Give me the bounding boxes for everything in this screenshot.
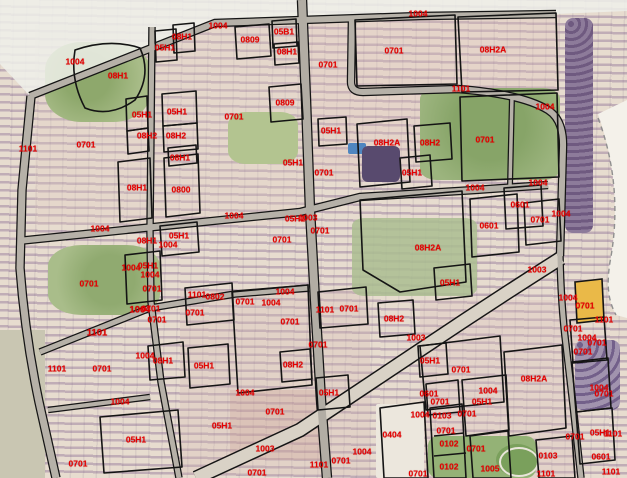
parcel-label[interactable]: 0701 xyxy=(186,309,205,318)
parcel-label[interactable]: 0809 xyxy=(276,99,295,108)
parcel-label[interactable]: 0701 xyxy=(80,280,99,289)
parcel-label[interactable]: 1004 xyxy=(411,411,430,420)
parcel-label[interactable]: 1003 xyxy=(528,266,547,275)
parcel-label[interactable]: 0701 xyxy=(452,366,471,375)
parcel-label[interactable]: 05H1 xyxy=(420,357,440,366)
parcel-label[interactable]: 1101 xyxy=(537,470,555,478)
parcel-label[interactable]: 0701 xyxy=(225,113,244,122)
parcel-label[interactable]: 0701 xyxy=(409,470,428,478)
parcel-label[interactable]: 1004 xyxy=(353,448,372,457)
parcel-label[interactable]: 0701 xyxy=(315,169,334,178)
parcel-label[interactable]: 05H1 xyxy=(440,279,460,288)
parcel-label[interactable]: 05H1 xyxy=(167,108,187,117)
parcel-label[interactable]: 0701 xyxy=(148,316,167,325)
parcel-label[interactable]: 1004 xyxy=(136,352,155,361)
parcel-label[interactable]: 05H1 xyxy=(155,44,175,53)
parcel-label[interactable]: 0701 xyxy=(476,136,495,145)
parcel-label[interactable]: 08H2A xyxy=(415,244,441,253)
parcel-label[interactable]: 05H1 xyxy=(319,389,339,398)
parcel-label[interactable]: 0701 xyxy=(266,408,285,417)
parcel-label[interactable]: 1101 xyxy=(316,306,334,315)
parcel-label[interactable]: 08H1 xyxy=(153,357,173,366)
parcel-label[interactable]: 0103 xyxy=(433,412,452,421)
parcel-label[interactable]: 0701 xyxy=(458,410,477,419)
parcel-label[interactable]: 05H1 xyxy=(472,398,492,407)
parcel-label[interactable]: 0701 xyxy=(385,47,404,56)
parcel-label[interactable]: 0701 xyxy=(437,427,456,436)
parcel-label[interactable]: 0701 xyxy=(311,227,330,236)
parcel-label[interactable]: 0701 xyxy=(431,398,450,407)
parcel-label[interactable]: 0701 xyxy=(142,305,161,314)
parcel-label[interactable]: 0404 xyxy=(383,431,402,440)
parcel-label[interactable]: 1101 xyxy=(595,316,613,325)
parcel-label[interactable]: 1101 xyxy=(48,365,66,374)
parcel-label[interactable]: 0701 xyxy=(281,318,300,327)
parcel-label[interactable]: 08H1 xyxy=(127,184,147,193)
parcel-label[interactable]: 0701 xyxy=(531,216,550,225)
parcel-label[interactable]: 0103 xyxy=(539,452,558,461)
parcel-label[interactable]: 0802 xyxy=(206,293,225,302)
parcel-label[interactable]: 05H1 xyxy=(194,362,214,371)
parcel-label[interactable]: 1004 xyxy=(479,387,498,396)
parcel-label[interactable]: 1101 xyxy=(604,430,622,439)
parcel-label[interactable]: 05H1 xyxy=(126,436,146,445)
parcel-label[interactable]: 0701 xyxy=(576,302,595,311)
parcel-label[interactable]: 1004 xyxy=(276,288,295,297)
parcel-label[interactable]: 08H1 xyxy=(172,33,192,42)
parcel-label[interactable]: 0701 xyxy=(69,460,88,469)
parcel-label[interactable]: 1004 xyxy=(225,212,244,221)
parcel-label[interactable]: 0800 xyxy=(172,186,191,195)
parcel-label[interactable]: 08H2 xyxy=(384,315,404,324)
parcel-label[interactable]: 0102 xyxy=(440,440,459,449)
parcel-label[interactable]: 0601 xyxy=(511,201,530,210)
parcel-label[interactable]: 08H2 xyxy=(420,139,440,148)
parcel-label[interactable]: 1004 xyxy=(262,299,281,308)
parcel-label[interactable]: 1005 xyxy=(481,465,500,474)
parcel-label[interactable]: 05H1 xyxy=(321,127,341,136)
parcel-label[interactable]: 08H1 xyxy=(277,48,297,57)
parcel-label[interactable]: 1004 xyxy=(409,10,428,19)
parcel-label[interactable]: 08H2 xyxy=(137,132,157,141)
parcel-label[interactable]: 0701 xyxy=(273,236,292,245)
parcel-label[interactable]: 08H2 xyxy=(283,361,303,370)
parcel-label[interactable]: 0701 xyxy=(309,341,328,350)
parcel-label[interactable]: 08H1 xyxy=(108,72,128,81)
parcel-label[interactable]: 1004 xyxy=(529,179,548,188)
parcel-label[interactable]: 1004 xyxy=(91,225,110,234)
parcel-label[interactable]: 0701 xyxy=(332,457,351,466)
parcel-label[interactable]: 1003 xyxy=(256,445,275,454)
parcel-label[interactable]: 1004 xyxy=(66,58,85,67)
parcel-label[interactable]: 0701 xyxy=(248,469,267,478)
parcel-label[interactable]: 0601 xyxy=(480,222,499,231)
parcel-label[interactable]: 0701 xyxy=(467,445,486,454)
parcel-label[interactable]: 0701 xyxy=(77,141,96,150)
parcel-label[interactable]: 1004 xyxy=(111,398,130,407)
parcel-label[interactable]: 0701 xyxy=(93,365,112,374)
parcel-label[interactable]: 08H2A xyxy=(480,46,506,55)
parcel-label[interactable]: 0701 xyxy=(143,285,162,294)
parcel-label[interactable]: 1004 xyxy=(466,184,485,193)
parcel-label[interactable]: 0809 xyxy=(241,36,260,45)
parcel-label[interactable]: 08H2A xyxy=(374,139,400,148)
parcel-label[interactable]: 1101 xyxy=(602,468,620,477)
parcel-label[interactable]: 1003 xyxy=(299,214,318,223)
parcel-label[interactable]: 1101 xyxy=(188,291,206,300)
parcel-label[interactable]: 0701 xyxy=(236,298,255,307)
parcel-label[interactable]: 08H2 xyxy=(166,132,186,141)
parcel-label[interactable]: 1101 xyxy=(87,329,108,338)
parcel-label[interactable]: 0102 xyxy=(440,463,459,472)
parcel-label[interactable]: 0701 xyxy=(319,61,338,70)
parcel-label[interactable]: 05H1 xyxy=(283,159,303,168)
parcel-label[interactable]: 05H1 xyxy=(212,422,232,431)
parcel-label[interactable]: 05B1 xyxy=(274,28,294,37)
parcel-label[interactable]: 0701 xyxy=(566,433,585,442)
parcel-label[interactable]: 08H2A xyxy=(521,375,547,384)
parcel-label[interactable]: 1004 xyxy=(552,210,571,219)
parcel-labels-layer: 1004110108H105H108H11004080905B108H10701… xyxy=(0,0,627,478)
parcel-label[interactable]: 0701 xyxy=(595,390,614,399)
parcel-label[interactable]: 0701 xyxy=(574,348,593,357)
parcel-label[interactable]: 1101 xyxy=(310,461,328,470)
parcel-label[interactable]: 1004 xyxy=(536,103,555,112)
parcel-label[interactable]: 1003 xyxy=(407,334,426,343)
parcel-label[interactable]: 05H1 xyxy=(132,111,152,120)
parcel-label[interactable]: 0601 xyxy=(592,453,611,462)
parcel-label[interactable]: 1101 xyxy=(19,145,37,154)
map-viewport[interactable]: 1004110108H105H108H11004080905B108H10701… xyxy=(0,0,627,478)
parcel-label[interactable]: 1101 xyxy=(452,85,470,94)
parcel-label[interactable]: 1004 xyxy=(159,241,178,250)
parcel-label[interactable]: 1004 xyxy=(236,389,255,398)
parcel-label[interactable]: 0701 xyxy=(340,305,359,314)
parcel-label[interactable]: 08H1 xyxy=(137,237,157,246)
parcel-label[interactable]: 1004 xyxy=(141,271,160,280)
parcel-label[interactable]: 05H1 xyxy=(402,169,422,178)
parcel-label[interactable]: 1004 xyxy=(209,22,228,31)
parcel-label[interactable]: 08H1 xyxy=(170,154,190,163)
